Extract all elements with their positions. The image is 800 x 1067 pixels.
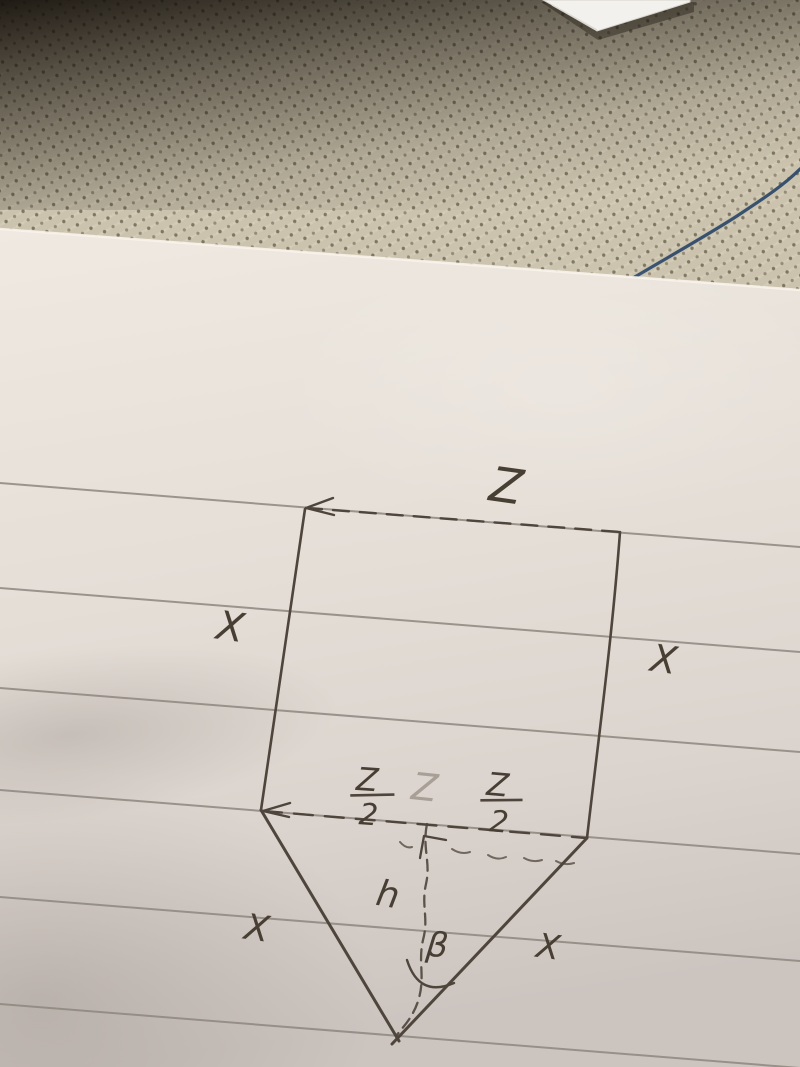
sketch-photo: Z X X Z 2 Z Z 2 h β X X: [0, 0, 800, 1067]
fraction-numerator: Z: [484, 765, 511, 805]
fraction-numerator: Z: [354, 760, 381, 800]
label-faint-center: Z: [408, 764, 440, 811]
label-angle-beta: β: [423, 925, 450, 967]
fraction-denominator: 2: [488, 804, 510, 841]
fabric-top-shadow: [0, 0, 800, 210]
photo-scene: Z X X Z 2 Z Z 2 h β X X: [0, 0, 800, 1067]
fraction-denominator: 2: [358, 797, 379, 833]
